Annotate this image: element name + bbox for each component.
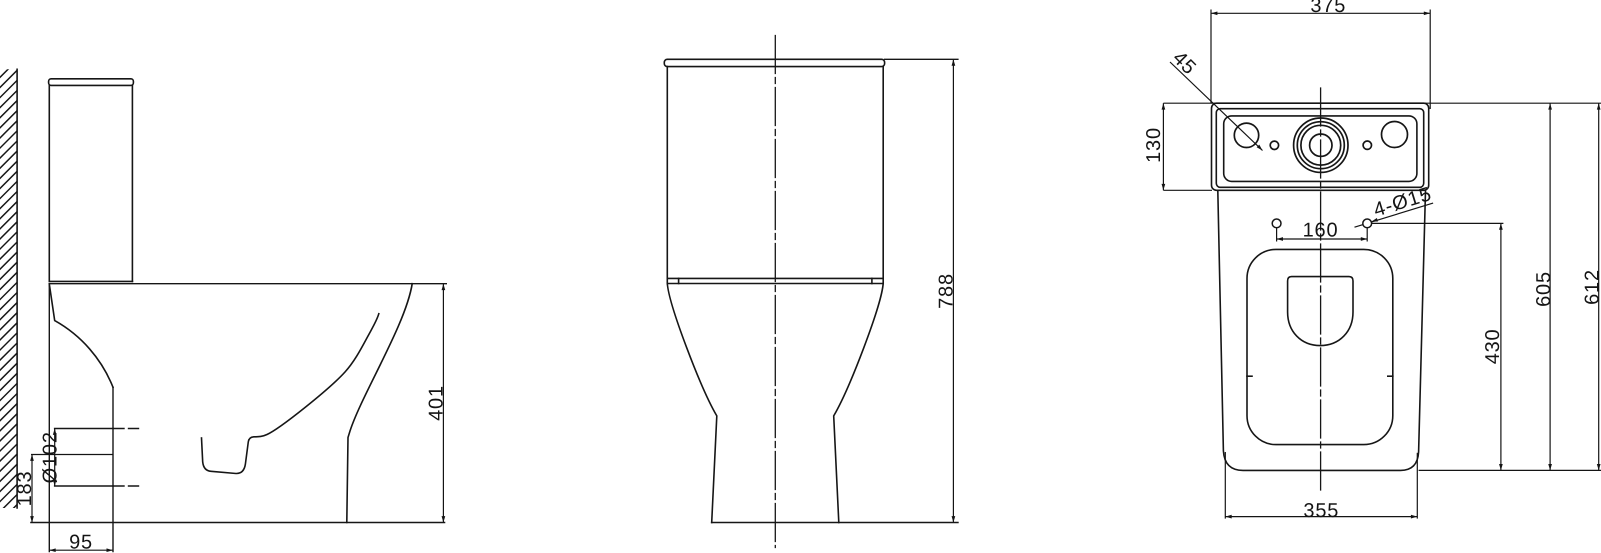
svg-text:355: 355 — [1303, 500, 1339, 522]
svg-text:788: 788 — [936, 273, 958, 309]
svg-text:95: 95 — [69, 532, 93, 553]
svg-text:375: 375 — [1310, 0, 1346, 17]
svg-text:605: 605 — [1533, 271, 1555, 307]
svg-text:Ø102: Ø102 — [40, 431, 62, 483]
svg-text:160: 160 — [1303, 220, 1339, 242]
svg-text:612: 612 — [1581, 269, 1601, 305]
svg-text:430: 430 — [1482, 329, 1504, 365]
svg-text:183: 183 — [14, 471, 36, 507]
svg-text:401: 401 — [426, 385, 448, 421]
svg-text:130: 130 — [1143, 127, 1165, 163]
